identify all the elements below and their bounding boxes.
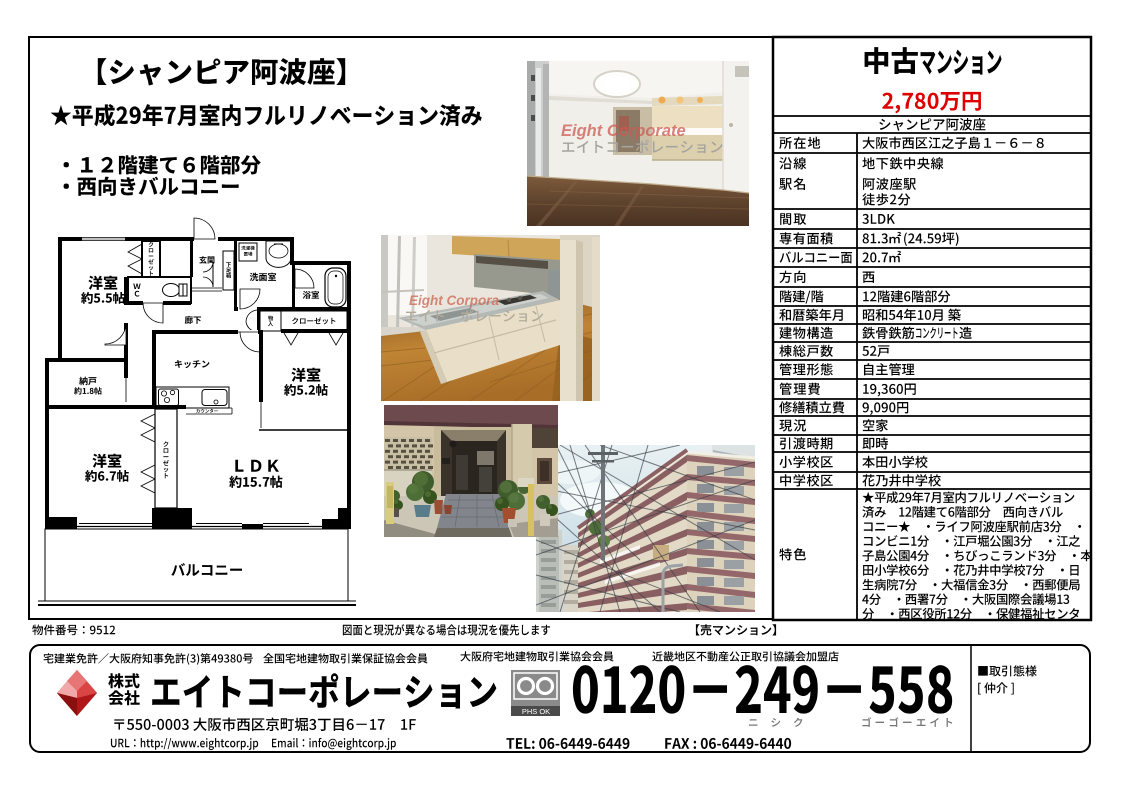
svg-text:Eight Corporate: Eight Corporate	[561, 122, 686, 140]
svg-text:PHS OK: PHS OK	[522, 707, 550, 716]
svg-text:Eight Corpora: Eight Corpora	[409, 293, 499, 308]
